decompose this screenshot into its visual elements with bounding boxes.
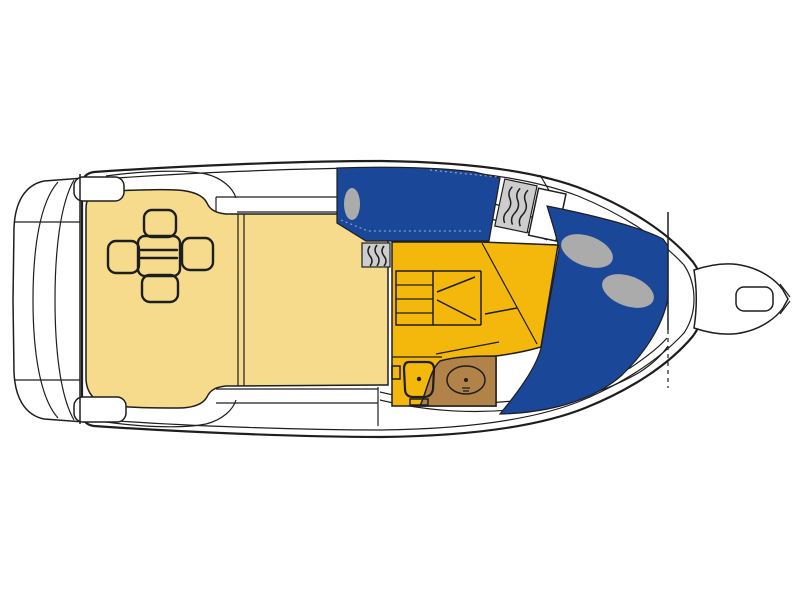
steps-hatch-panel [362, 243, 390, 267]
anchor-roller-cutout [736, 287, 773, 311]
washbasin-drain-dot [464, 378, 468, 382]
boat-floor-plan [0, 0, 800, 600]
swim-platform [13, 178, 84, 422]
mid-berth-pillow [344, 188, 360, 220]
mid-berth-mattress [337, 167, 500, 241]
mid-cabin-berth [337, 167, 500, 241]
swim-platform-outline [13, 178, 84, 422]
stern-step-box-bottom [74, 397, 126, 422]
toilet-drain-dot [417, 377, 421, 381]
stern-step-box-top [74, 177, 124, 201]
